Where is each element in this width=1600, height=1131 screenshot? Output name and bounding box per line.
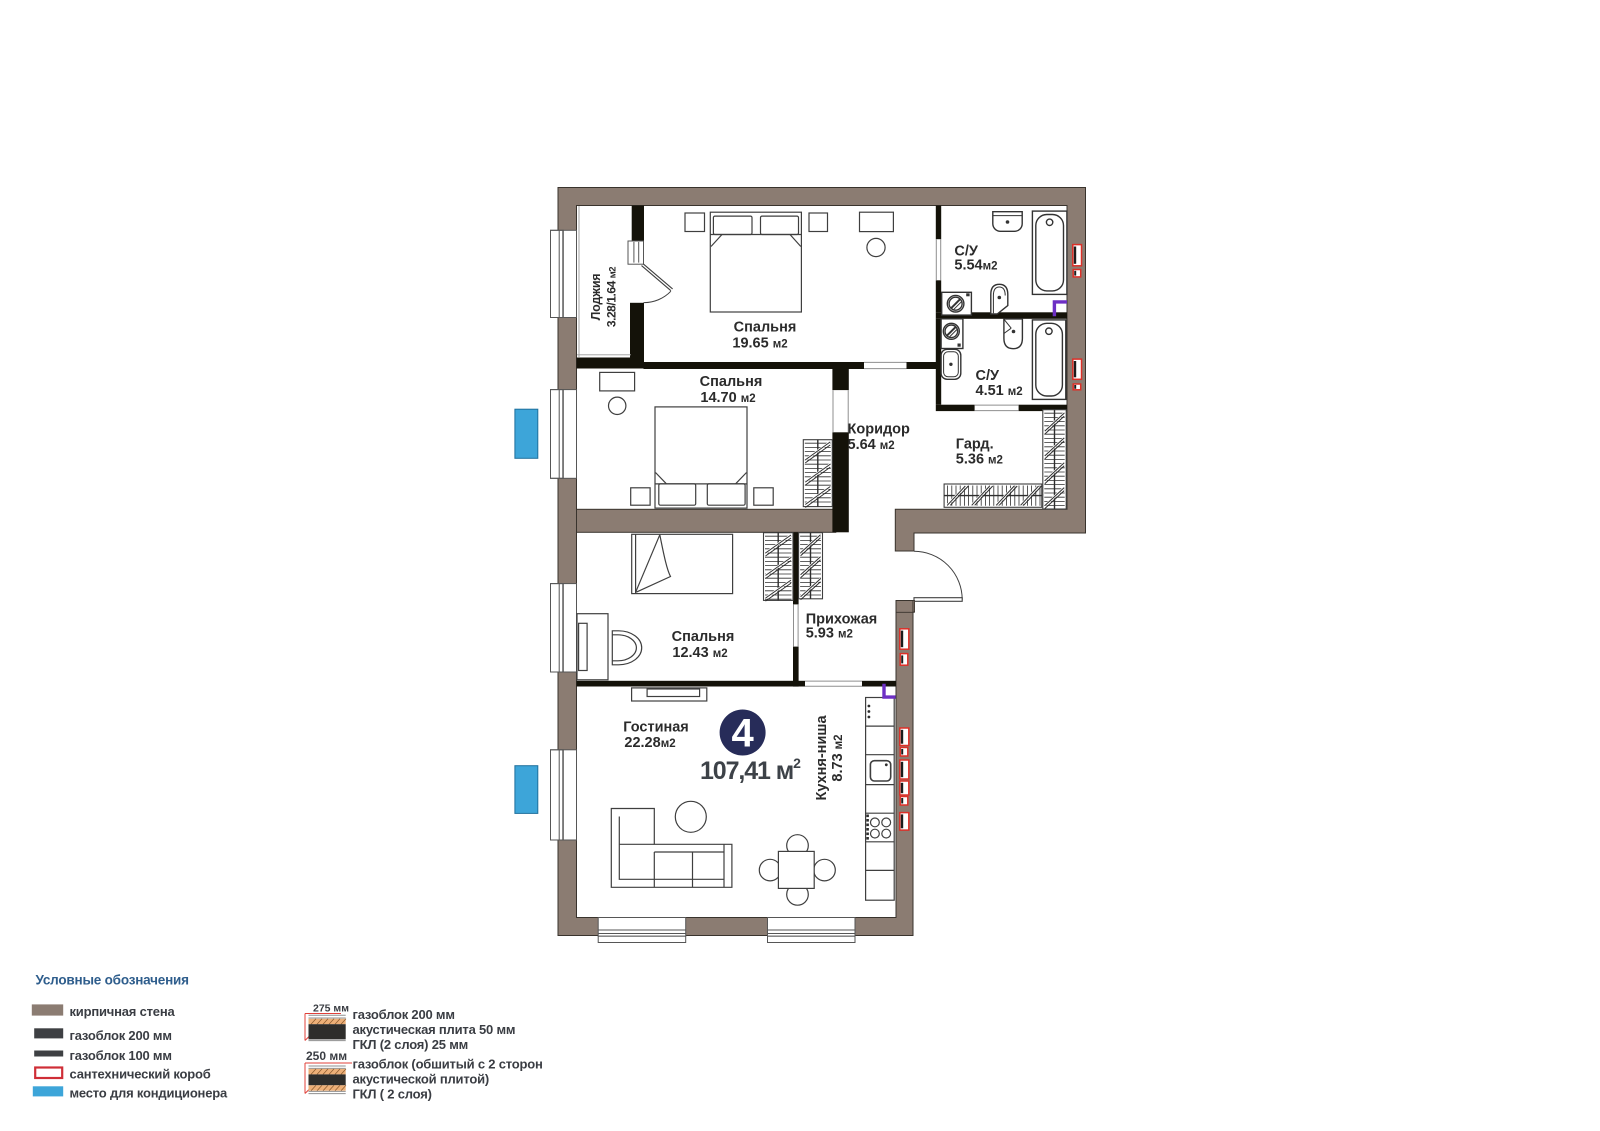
svg-text:8.73 м2: 8.73 м2 <box>830 734 846 781</box>
svg-text:14.70 м2: 14.70 м2 <box>700 390 755 406</box>
svg-text:кирпичная стена: кирпичная стена <box>70 1004 176 1019</box>
svg-text:107,41 м2: 107,41 м2 <box>700 755 801 785</box>
svg-text:место для кондиционера: место для кондиционера <box>70 1086 228 1101</box>
svg-text:Лоджия: Лоджия <box>589 274 603 321</box>
svg-text:С/У: С/У <box>976 368 1001 384</box>
svg-text:газоблок 200 мм: газоблок 200 мм <box>353 1007 455 1022</box>
svg-text:4.51 м2: 4.51 м2 <box>976 383 1023 399</box>
svg-text:акустической плитой): акустической плитой) <box>353 1072 490 1087</box>
svg-text:ГКЛ ( 2 слоя): ГКЛ ( 2 слоя) <box>353 1087 432 1102</box>
svg-text:Условные обозначения: Условные обозначения <box>36 973 189 988</box>
svg-text:275 мм: 275 мм <box>313 1003 349 1015</box>
svg-text:ГКЛ (2 слоя) 25 мм: ГКЛ (2 слоя) 25 мм <box>353 1037 469 1052</box>
svg-text:газоблок 200 мм: газоблок 200 мм <box>70 1028 172 1043</box>
svg-text:Кухня-ниша: Кухня-ниша <box>814 715 830 801</box>
svg-text:Коридор: Коридор <box>848 422 911 438</box>
svg-text:газоблок 100 мм: газоблок 100 мм <box>70 1048 172 1063</box>
svg-text:12.43 м2: 12.43 м2 <box>672 645 727 661</box>
svg-text:4: 4 <box>731 712 754 756</box>
svg-text:Гостиная: Гостиная <box>623 720 689 736</box>
svg-text:5.93 м2: 5.93 м2 <box>806 626 853 642</box>
svg-text:сантехнический короб: сантехнический короб <box>70 1067 211 1082</box>
svg-text:3.28/1.64 м2: 3.28/1.64 м2 <box>605 267 619 327</box>
svg-text:22.28м2: 22.28м2 <box>624 735 675 751</box>
svg-text:19.65 м2: 19.65 м2 <box>732 336 787 352</box>
svg-text:акустическая плита 50 мм: акустическая плита 50 мм <box>353 1022 516 1037</box>
svg-text:5.36 м2: 5.36 м2 <box>956 452 1003 468</box>
svg-text:Спальня: Спальня <box>672 629 735 645</box>
svg-text:Гард.: Гард. <box>956 437 994 453</box>
svg-text:Спальня: Спальня <box>700 374 763 390</box>
svg-text:5.64 м2: 5.64 м2 <box>848 437 895 453</box>
svg-text:250 мм: 250 мм <box>306 1049 347 1063</box>
svg-text:5.54м2: 5.54м2 <box>954 258 997 274</box>
svg-text:газоблок (обшитый с 2 сторон: газоблок (обшитый с 2 сторон <box>353 1056 543 1071</box>
svg-text:Спальня: Спальня <box>734 320 797 336</box>
